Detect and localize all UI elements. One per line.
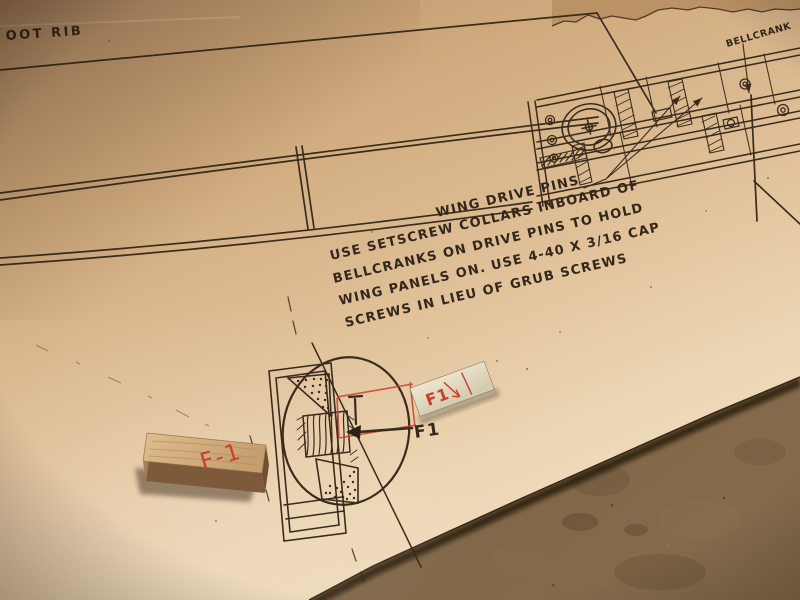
scene-canvas: OOT RIB BELLCRANK WING DRIVE PINS USE SE… <box>0 0 800 600</box>
lighting <box>0 0 800 600</box>
workbench-photo: OOT RIB BELLCRANK WING DRIVE PINS USE SE… <box>0 0 800 600</box>
